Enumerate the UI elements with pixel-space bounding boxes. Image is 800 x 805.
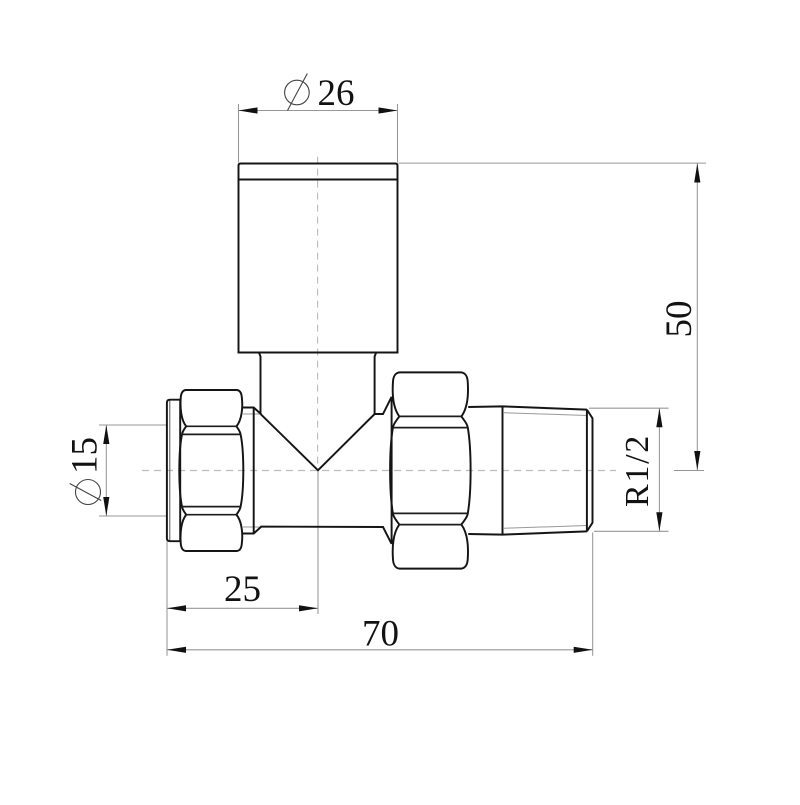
svg-text:26: 26 [318,73,355,114]
svg-text:70: 70 [362,614,399,655]
svg-text:R1/2: R1/2 [619,434,656,507]
svg-text:50: 50 [659,301,700,338]
svg-text:25: 25 [224,569,261,610]
svg-text:15: 15 [65,437,106,474]
